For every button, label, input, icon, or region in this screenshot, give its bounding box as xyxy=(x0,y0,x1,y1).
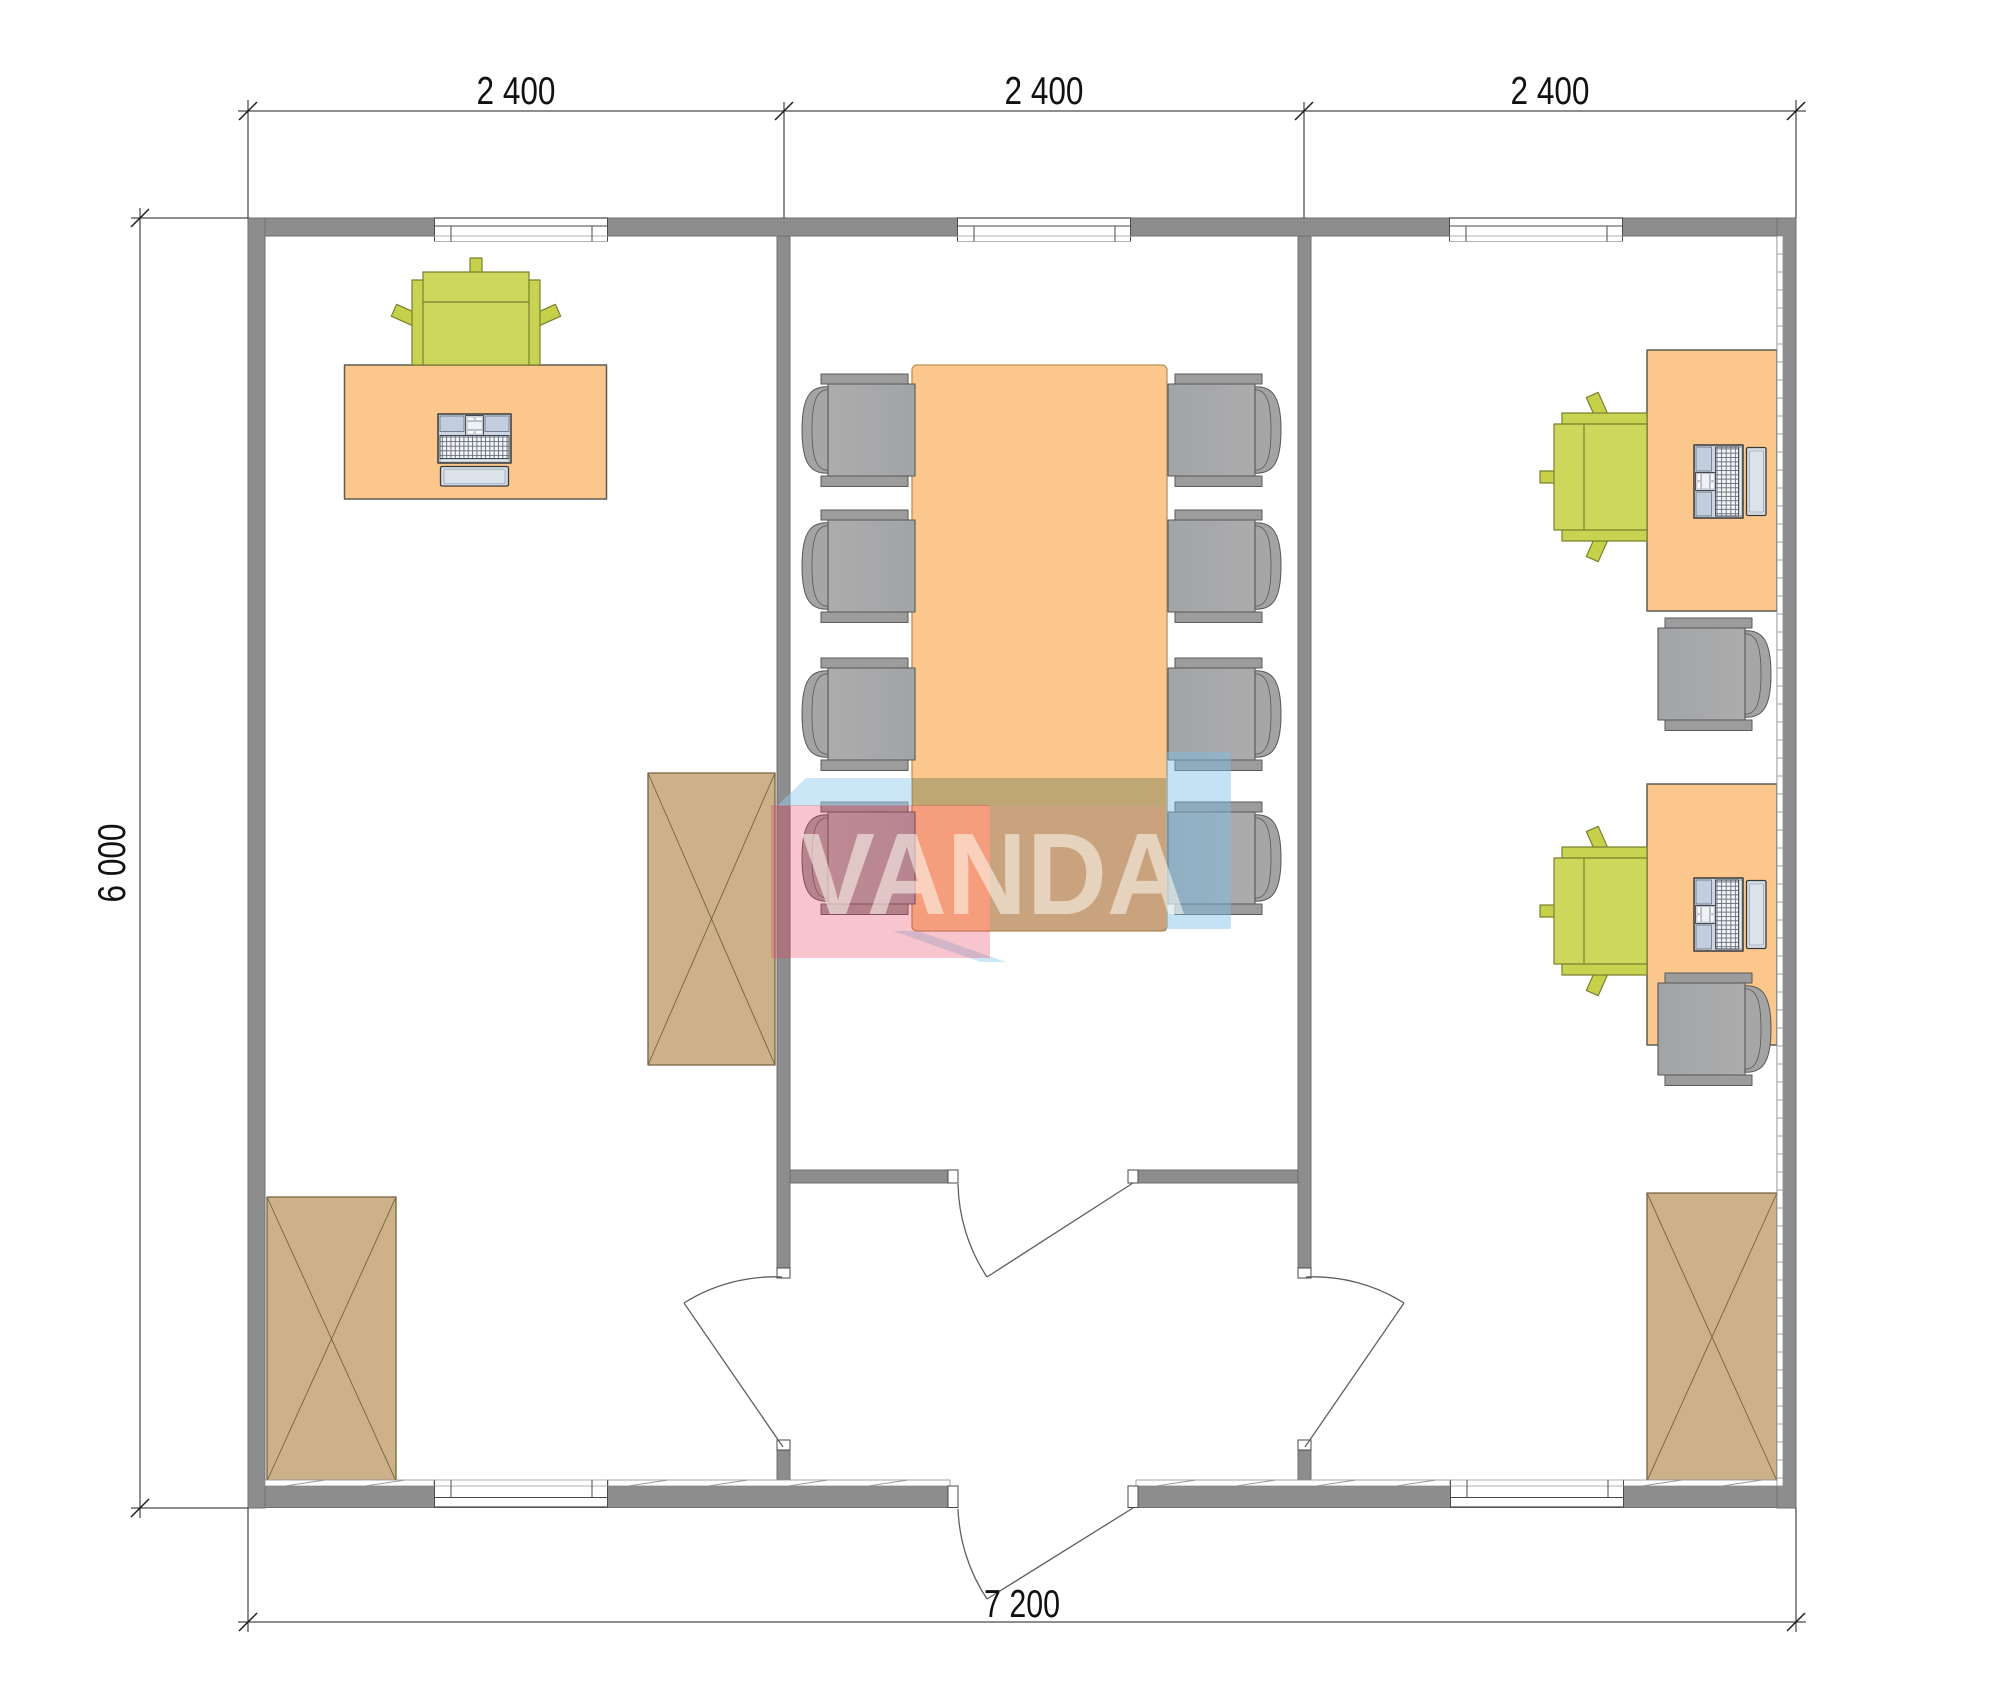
svg-text:2 400: 2 400 xyxy=(477,70,556,113)
svg-text:VANDA: VANDA xyxy=(801,809,1187,939)
svg-text:2 400: 2 400 xyxy=(1005,70,1084,113)
svg-text:2 400: 2 400 xyxy=(1511,70,1590,113)
svg-text:7 200: 7 200 xyxy=(984,1583,1060,1626)
svg-text:6 000: 6 000 xyxy=(91,824,134,903)
